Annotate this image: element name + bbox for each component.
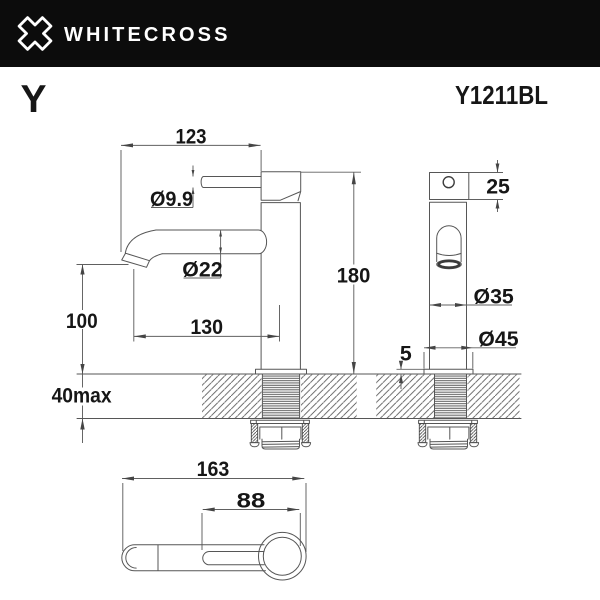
svg-text:100: 100	[66, 309, 98, 333]
svg-text:Ø22: Ø22	[182, 258, 222, 282]
svg-text:25: 25	[486, 174, 510, 198]
svg-text:Ø9.9: Ø9.9	[150, 187, 193, 211]
svg-text:163: 163	[197, 457, 230, 481]
svg-text:Y: Y	[21, 78, 47, 121]
svg-text:130: 130	[190, 315, 223, 339]
svg-text:Ø45: Ø45	[478, 327, 518, 351]
svg-text:Y1211BL: Y1211BL	[455, 82, 548, 110]
svg-text:WHITECROSS: WHITECROSS	[64, 24, 231, 46]
svg-text:5: 5	[400, 342, 412, 366]
svg-text:88: 88	[237, 489, 266, 513]
svg-text:40max: 40max	[52, 384, 112, 408]
svg-text:123: 123	[176, 125, 207, 149]
svg-text:180: 180	[337, 263, 371, 287]
svg-text:Ø35: Ø35	[474, 285, 514, 309]
